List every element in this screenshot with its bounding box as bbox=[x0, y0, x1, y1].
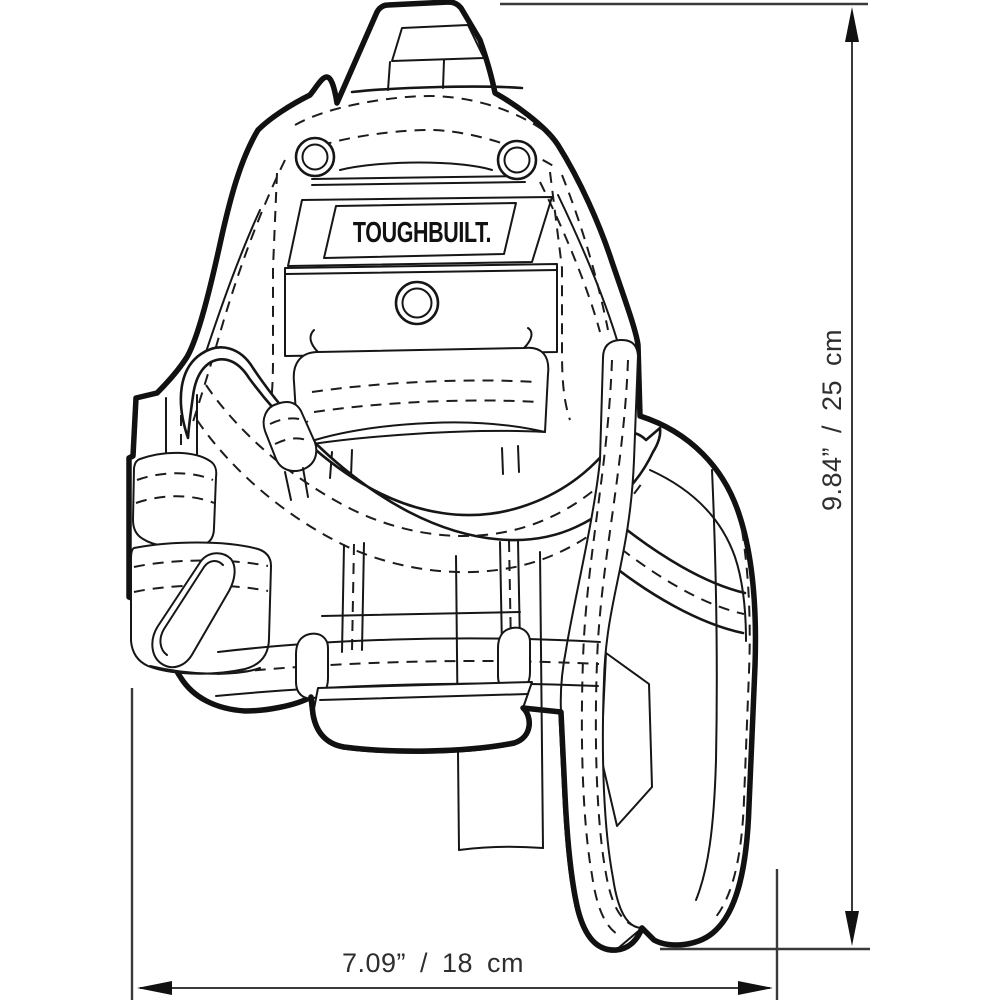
arrow-up-icon bbox=[845, 7, 859, 42]
tool-pouch-illustration: TOUGHBUILT. bbox=[129, 2, 755, 950]
bottom-flap bbox=[311, 682, 532, 751]
width-dimension-label: 7.09” / 18 cm bbox=[342, 948, 524, 978]
arrow-down-icon bbox=[845, 911, 859, 946]
arrow-left-icon bbox=[137, 981, 172, 995]
diagram-canvas: TOUGHBUILT. bbox=[0, 0, 1000, 1000]
height-dimension-label: 9.84” / 25 cm bbox=[817, 329, 847, 511]
arrow-right-icon bbox=[738, 981, 773, 995]
brand-logo: TOUGHBUILT. bbox=[353, 217, 491, 249]
product-dimension-diagram: TOUGHBUILT. bbox=[0, 0, 1000, 1000]
